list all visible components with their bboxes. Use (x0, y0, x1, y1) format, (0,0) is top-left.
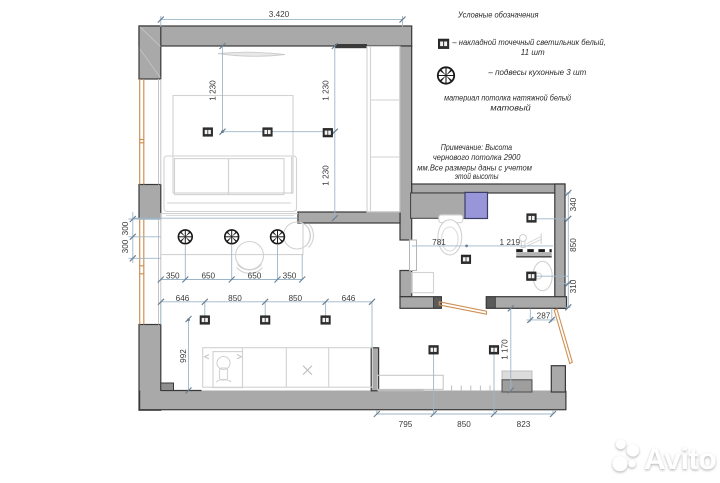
svg-text:350: 350 (166, 272, 180, 281)
svg-text:– накладной точечный светильни: – накладной точечный светильник белый, (451, 38, 605, 47)
svg-text:850: 850 (288, 294, 302, 303)
svg-text:650: 650 (201, 272, 215, 281)
svg-text:850: 850 (569, 238, 578, 252)
svg-text:чернового потолка 2900: чернового потолка 2900 (433, 153, 521, 162)
svg-text:310: 310 (569, 279, 578, 293)
svg-text:Avito: Avito (644, 443, 716, 476)
svg-text:матовый: матовый (490, 103, 531, 112)
svg-text:850: 850 (228, 294, 242, 303)
svg-text:650: 650 (248, 272, 262, 281)
svg-text:300: 300 (121, 221, 130, 235)
svg-text:300: 300 (121, 239, 130, 253)
svg-text:646: 646 (342, 294, 356, 303)
svg-text:781: 781 (432, 238, 446, 247)
svg-text:823: 823 (517, 420, 531, 429)
svg-text:Примечание: Высота: Примечание: Высота (441, 143, 513, 152)
svg-text:11 шт: 11 шт (521, 48, 545, 57)
svg-text:мм.Все размеры даны с учетом: мм.Все размеры даны с учетом (417, 163, 532, 172)
svg-text:340: 340 (569, 197, 578, 211)
svg-text:– подвесы кухонные 3 шт: – подвесы кухонные 3 шт (487, 68, 586, 77)
svg-text:1 219: 1 219 (500, 238, 521, 247)
svg-text:Условные обозначения: Условные обозначения (457, 10, 539, 19)
svg-text:этой высоты: этой высоты (455, 172, 499, 181)
svg-text:1 230: 1 230 (322, 165, 331, 186)
svg-text:287: 287 (537, 312, 551, 321)
svg-text:795: 795 (399, 420, 413, 429)
svg-text:3.420: 3.420 (269, 10, 290, 19)
svg-text:1 170: 1 170 (501, 339, 510, 360)
svg-text:1 230: 1 230 (209, 80, 218, 101)
svg-text:646: 646 (176, 294, 190, 303)
svg-text:850: 850 (457, 420, 471, 429)
svg-text:материал потолка натяжной белы: материал потолка натяжной белый (444, 94, 571, 103)
svg-text:350: 350 (283, 272, 297, 281)
svg-text:992: 992 (179, 349, 188, 363)
svg-text:1 230: 1 230 (322, 80, 331, 101)
